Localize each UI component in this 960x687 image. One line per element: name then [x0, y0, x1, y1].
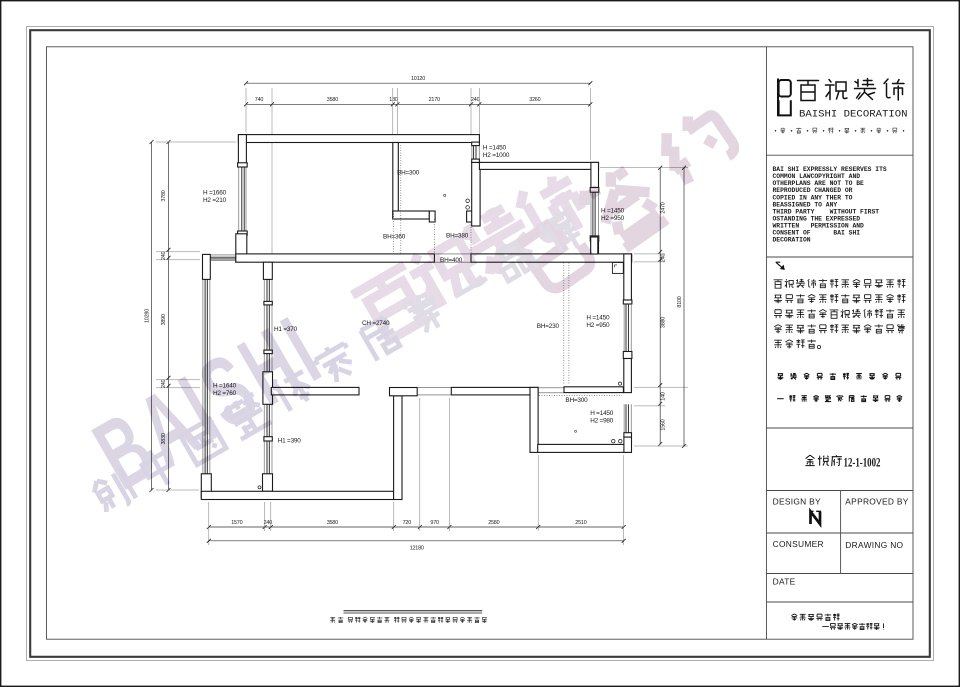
svg-text:2510: 2510	[575, 520, 586, 526]
svg-text:240: 240	[161, 251, 167, 260]
svg-text:BH=300: BH=300	[397, 170, 420, 177]
svg-text:REPRODUCED CHANGED OR: REPRODUCED CHANGED OR	[773, 187, 853, 194]
svg-text:8100: 8100	[677, 296, 683, 307]
svg-text:H2 =950: H2 =950	[586, 322, 610, 329]
svg-text:240: 240	[661, 254, 667, 263]
svg-text:OSTANDING THE EXPRESSED: OSTANDING THE EXPRESSED	[773, 215, 861, 222]
svg-text:APPROVED BY: APPROVED BY	[845, 497, 908, 507]
svg-text:THIRD PARTY WITHOUT FIRST: THIRD PARTY WITHOUT FIRST	[773, 208, 880, 215]
svg-text:H2 =1000: H2 =1000	[483, 152, 510, 159]
svg-text:BH=360: BH=360	[383, 234, 406, 241]
svg-text:BAISHI DECORATION: BAISHI DECORATION	[799, 110, 908, 121]
svg-text:2170: 2170	[429, 97, 440, 103]
svg-text:DATE: DATE	[773, 576, 796, 586]
svg-text:970: 970	[430, 520, 439, 526]
svg-text:BH=300: BH=300	[565, 397, 588, 404]
svg-text:COMMON LAWCOPYRIGHT AND: COMMON LAWCOPYRIGHT AND	[773, 173, 861, 180]
svg-text:DECORATION: DECORATION	[773, 237, 811, 244]
svg-text:12180: 12180	[410, 545, 424, 551]
svg-text:H =1450: H =1450	[483, 145, 507, 152]
svg-text:240: 240	[471, 97, 480, 103]
svg-text:3780: 3780	[161, 190, 167, 201]
svg-text:3890: 3890	[161, 314, 167, 325]
svg-text:OTHERPLANS ARE NOT TO BE: OTHERPLANS ARE NOT TO BE	[773, 180, 865, 187]
svg-text:H =1660: H =1660	[203, 190, 227, 197]
svg-text:1570: 1570	[231, 520, 242, 526]
svg-text:720: 720	[403, 520, 412, 526]
svg-text:H =1450: H =1450	[586, 315, 610, 322]
svg-text:12-1-1002: 12-1-1002	[844, 454, 881, 469]
svg-text:DESIGN BY: DESIGN BY	[773, 496, 821, 506]
svg-text:1560: 1560	[661, 419, 667, 430]
svg-text:H1 =390: H1 =390	[278, 438, 302, 445]
svg-text:2470: 2470	[661, 202, 667, 213]
svg-text:10280: 10280	[145, 309, 151, 323]
svg-text:H2 =210: H2 =210	[203, 197, 227, 204]
svg-text:130: 130	[389, 97, 398, 103]
svg-text:WRITTEN PERMISSION AND: WRITTEN PERMISSION AND	[773, 223, 865, 230]
svg-text:2580: 2580	[488, 520, 499, 526]
svg-text:740: 740	[255, 97, 264, 103]
svg-text:DRAWING NO: DRAWING NO	[845, 540, 903, 550]
svg-text:140: 140	[661, 392, 667, 401]
svg-text:H =1450: H =1450	[590, 410, 614, 417]
svg-text:3580: 3580	[327, 97, 338, 103]
svg-text:CONSENT OF BAI SHI: CONSENT OF BAI SHI	[773, 230, 861, 237]
svg-text:BEASSIGNED TO ANY: BEASSIGNED TO ANY	[773, 201, 838, 208]
svg-text:COPIED IN ANY THER TO: COPIED IN ANY THER TO	[773, 194, 853, 201]
svg-text:3580: 3580	[327, 520, 338, 526]
svg-text:3880: 3880	[661, 317, 667, 328]
svg-text:3260: 3260	[529, 97, 540, 103]
svg-text:10120: 10120	[411, 76, 425, 82]
svg-text:BH=230: BH=230	[537, 323, 560, 330]
svg-text:BAI SHI EXPRESSLY RESERVES ITS: BAI SHI EXPRESSLY RESERVES ITS	[773, 166, 887, 173]
svg-text:CONSUMER: CONSUMER	[773, 539, 824, 549]
svg-text:H2 =980: H2 =980	[590, 418, 614, 425]
